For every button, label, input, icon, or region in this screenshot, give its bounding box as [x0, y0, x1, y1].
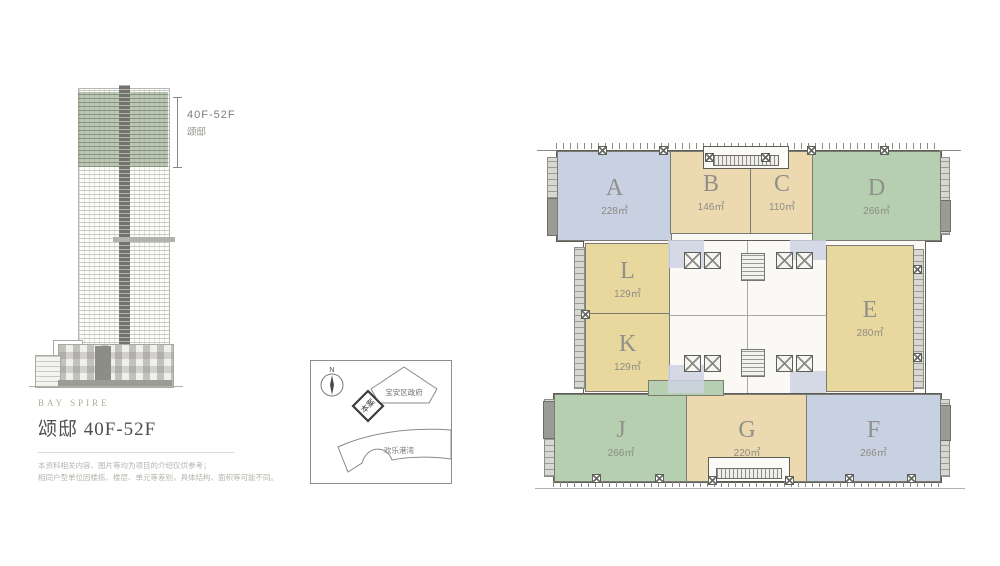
column-marker-icon: [785, 476, 794, 485]
column-marker-icon: [581, 310, 590, 319]
unit-G-label: G: [738, 418, 755, 442]
unit-F-area: 266㎡: [860, 444, 887, 459]
column-marker-icon: [705, 153, 714, 162]
eave-line-top-left: [537, 150, 557, 151]
unit-J-area: 266㎡: [608, 444, 635, 459]
column-marker-icon: [880, 146, 889, 155]
elevator-bank-lower-left: [684, 355, 721, 372]
unit-J: J 266㎡: [554, 394, 688, 482]
unit-K-area: 129㎡: [614, 358, 641, 373]
unit-L-area: 129㎡: [614, 285, 641, 300]
range-bracket-cap-bottom: [173, 167, 182, 168]
unit-A: A 228㎡: [557, 151, 672, 241]
compass-north-label: N: [329, 365, 334, 374]
unit-A-area: 228㎡: [601, 202, 628, 217]
elevator-bank-upper-right: [776, 252, 813, 269]
elevator-icon: [796, 252, 813, 269]
range-bracket-cap-top: [173, 97, 182, 98]
eave-line-top-right: [939, 150, 961, 151]
column-marker-icon: [761, 153, 770, 162]
unit-B-area: 146㎡: [698, 198, 725, 213]
floor-plan: A 228㎡ B 146㎡ C 110㎡ D 266㎡ L 129㎡ K 129…: [545, 143, 955, 495]
ground-line: [29, 386, 183, 387]
unit-A-label: A: [606, 176, 623, 200]
column-marker-icon: [592, 474, 601, 483]
floor-range-label: 40F-52F: [187, 109, 236, 121]
stairs-lower-icon: [741, 349, 765, 377]
unit-F: F 266㎡: [806, 394, 941, 482]
elevator-icon: [796, 355, 813, 372]
disclaimer-line-2: 相同户型单位因楼栋、楼层、单元等差别，具体结构、面积等可能不同。: [38, 472, 278, 483]
location-map-drawing: N 宝安区政府 本案 欢乐港湾: [311, 361, 451, 483]
column-marker-icon: [907, 474, 916, 483]
brand-name: BAY SPIRE: [38, 398, 110, 408]
plan-baseline: [535, 488, 965, 489]
unit-E: E 280㎡: [826, 245, 914, 392]
column-marker-icon: [655, 474, 664, 483]
column-marker-icon: [845, 474, 854, 483]
unit-D-area: 266㎡: [863, 202, 890, 217]
elevator-icon: [684, 252, 701, 269]
column-marker-icon: [807, 146, 816, 155]
column-marker-icon: [598, 146, 607, 155]
elevator-bank-upper-left: [684, 252, 721, 269]
disclaimer-line-1: 本资料相关内容、图片等均为项目的介绍仅供参考；: [38, 460, 211, 471]
unit-L: L 129㎡: [585, 243, 670, 315]
landmark-government-shape: [371, 367, 437, 403]
unit-C-label: C: [774, 172, 790, 196]
unit-E-label: E: [863, 298, 878, 322]
tower-core: [119, 85, 130, 386]
tower-refuge-floor: [113, 237, 175, 242]
elevator-bank-lower-right: [776, 355, 813, 372]
unit-L-label: L: [620, 259, 635, 283]
unit-B-label: B: [703, 172, 719, 196]
elevator-icon: [684, 355, 701, 372]
brochure-page: 40F-52F 颂邸 BAY SPIRE 颂邸 40F-52F 本资料相关内容、…: [0, 0, 1000, 566]
title-divider: [38, 452, 234, 453]
canopy-protrusion-bottom-detail: [716, 468, 782, 479]
compass-needle-icon: [330, 375, 334, 395]
column-marker-icon: [913, 353, 922, 362]
column-marker-icon: [659, 146, 668, 155]
elevator-icon: [704, 252, 721, 269]
unit-D-label: D: [868, 176, 885, 200]
column-marker-icon: [708, 476, 717, 485]
page-title: 颂邸 40F-52F: [38, 414, 156, 441]
unit-K-label: K: [619, 332, 636, 356]
location-map: N 宝安区政府 本案 欢乐港湾: [310, 360, 452, 484]
unit-E-area: 280㎡: [857, 324, 884, 339]
landmark-government-label: 宝安区政府: [385, 387, 423, 397]
elevator-icon: [704, 355, 721, 372]
stairs-upper-icon: [741, 253, 765, 281]
floor-range-sublabel: 颂邸: [187, 124, 206, 138]
elevator-icon: [776, 355, 793, 372]
bay-label: 欢乐港湾: [384, 445, 414, 455]
unit-C-area: 110㎡: [769, 198, 795, 213]
unit-F-label: F: [867, 418, 880, 442]
range-bracket-line: [177, 97, 178, 168]
unit-J-label: J: [616, 418, 625, 442]
core-lobby-sliver-4: [790, 371, 826, 393]
elevator-icon: [776, 252, 793, 269]
column-marker-icon: [913, 265, 922, 274]
unit-D: D 266㎡: [812, 151, 941, 241]
